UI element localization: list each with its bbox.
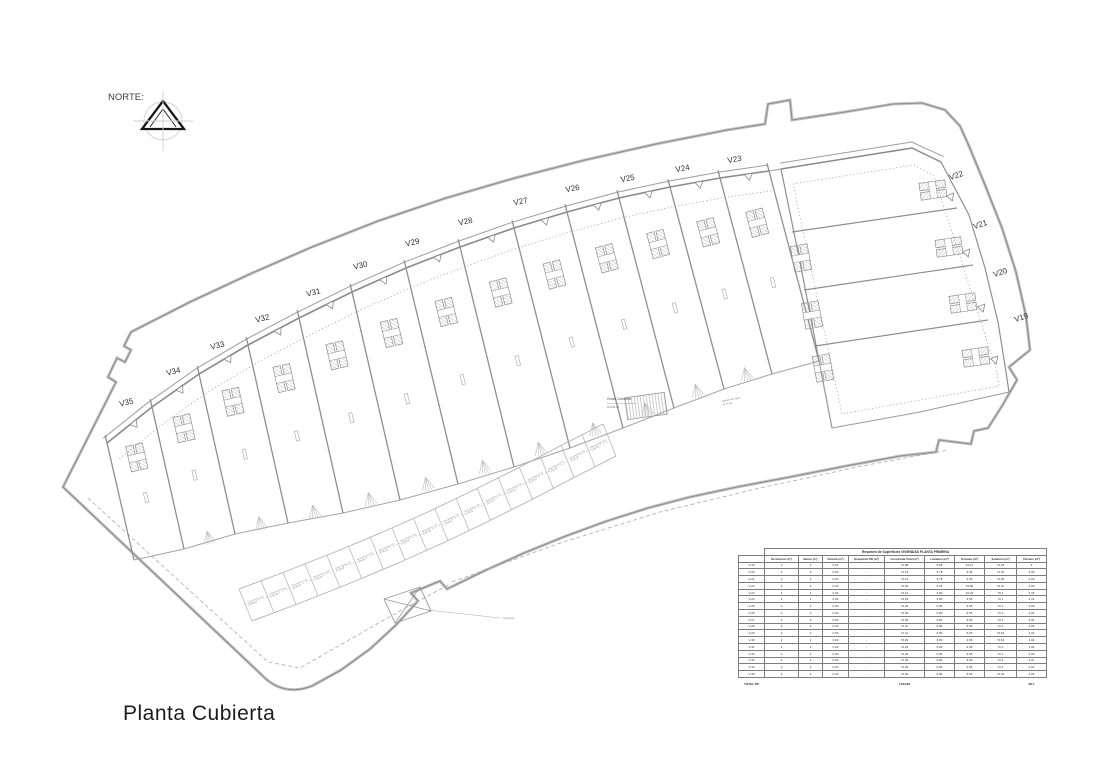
table-header: Trastero (m²) (1017, 555, 1047, 562)
parking-stall-label: Aparcamiento V2012,50 m2 (569, 449, 588, 462)
drawing-title: Planta Cubierta (123, 702, 275, 726)
roof-vent (349, 413, 354, 423)
table-row: V-26220,00-72,296,809,5672,14,04 (739, 610, 1047, 617)
table-cell: 72,1 (985, 650, 1017, 657)
row-id: V-23 (739, 589, 765, 596)
table-cell: 2 (799, 616, 823, 623)
row-id: V-21 (739, 576, 765, 583)
table-row: V-21220,00-71,135,789,3572,364,03 (739, 576, 1047, 583)
zonas-comunes-label: Zonas Comunes (607, 397, 632, 401)
stair-core-hatch (126, 443, 148, 472)
parking-stall-label: Aparcamiento V2812,50 m2 (400, 533, 419, 546)
parking-stall-label: Aparcamiento V2612,50 m2 (442, 513, 461, 526)
villa-label-V35: V35 (118, 396, 135, 408)
stair-core-hatch (543, 260, 566, 289)
table-cell: 2 (765, 569, 799, 576)
entrance-triangle (695, 181, 704, 189)
terrace-fan-line (692, 384, 695, 398)
table-cell: 72,1 (985, 623, 1017, 630)
row-id: V-26 (739, 610, 765, 617)
table-total-row: TOTAL PP1233,8068,7 (739, 679, 1047, 687)
table-row: V-28220,00-71,416,809,0572,14,04 (739, 623, 1047, 630)
table-cell: 2 (765, 664, 799, 671)
table-header: Dormitorios (nº) (765, 555, 799, 562)
table-header: Lavadero (m²) (925, 555, 955, 562)
setback-dashed-line (88, 498, 450, 668)
stair-core-hatch (949, 293, 977, 313)
table-row: V-35220,00-74,066,809,5674,334,04 (739, 671, 1047, 678)
table-cell: 5,78 (925, 576, 955, 583)
table-cell: 0,00 (823, 569, 849, 576)
table-cell: 72,1 (985, 616, 1017, 623)
table-cell: 6,80 (925, 596, 955, 603)
total-blank (823, 679, 849, 687)
table-cell: 4,01 (1017, 664, 1047, 671)
table-header: Ocupación PB (m²) (849, 555, 885, 562)
total-blank (985, 679, 1017, 687)
table-cell: 72,29 (885, 657, 925, 664)
terrace-fan-line (309, 505, 312, 519)
table-cell: 6,80 (925, 610, 955, 617)
table-cell: - (849, 657, 885, 664)
row-id: V-35 (739, 671, 765, 678)
table-cell: 0,00 (823, 664, 849, 671)
table-row: V-34220,00-72,296,809,5672,14,01 (739, 664, 1047, 671)
table-cell: 2 (765, 596, 799, 603)
table-cell: 74,64 (985, 637, 1017, 644)
total-blank (849, 679, 885, 687)
table-cell: 72,29 (885, 603, 925, 610)
table-cell: - (849, 589, 885, 596)
villa-label-V34: V34 (165, 365, 182, 377)
unit-divider (668, 179, 724, 389)
table-cell: 4,14 (1017, 596, 1047, 603)
table-cell: 10,11 (955, 562, 985, 569)
table-cell: 9,05 (955, 623, 985, 630)
table-cell: 0,00 (823, 589, 849, 596)
table-cell: 0,00 (823, 603, 849, 610)
villa-label-V23: V23 (727, 154, 743, 165)
stair-core-hatch (697, 218, 720, 247)
table-cell: 9,56 (955, 616, 985, 623)
parking-stall-label: Aparcamiento V2912,50 m2 (378, 542, 397, 554)
table-cell: 0,00 (823, 562, 849, 569)
parking-stall-label: Aparcamiento V2412,50 m2 (485, 492, 504, 505)
entrance-triangle (434, 254, 444, 263)
row-id: V-24 (739, 596, 765, 603)
table-cell: 10,22 (955, 589, 985, 596)
table-cell: 75,4 (985, 589, 1017, 596)
entrance-triangle (176, 386, 186, 396)
table-cell: 0,00 (823, 596, 849, 603)
table-cell: 72,98 (885, 562, 925, 569)
zonas-comunes-sublabel: Zonas peatonales y ajardinadas (607, 402, 636, 405)
row-id: V-34 (739, 664, 765, 671)
table-cell: - (849, 616, 885, 623)
table-cell: 2 (765, 562, 799, 569)
table-cell: 6,80 (925, 671, 955, 678)
table-cell: 71,36 (985, 569, 1017, 576)
stair-core-hatch (962, 347, 990, 367)
table-cell: 9,56 (955, 596, 985, 603)
table-cell: 4,03 (1017, 589, 1047, 596)
stair-core-hatch (790, 244, 811, 273)
stair-core-hatch (935, 237, 963, 257)
unit-divider (565, 204, 623, 428)
table-cell: 9,56 (955, 637, 985, 644)
roof-vent (192, 470, 197, 480)
table-cell: 72,36 (985, 576, 1017, 583)
table-cell: 2 (765, 610, 799, 617)
table-cell: 6,80 (925, 630, 955, 637)
table-cell: 2 (799, 569, 823, 576)
summary-table: Resumen de Superficies VIVIENDAS PLANTA … (738, 548, 1046, 687)
table-cell: 74,33 (985, 671, 1017, 678)
parking-stall-label: Aparcamiento V2712,50 m2 (421, 523, 440, 536)
table-cell: - (849, 623, 885, 630)
entrance-triangle (990, 355, 998, 364)
table-cell: 6,80 (925, 603, 955, 610)
table-cell: 4,04 (1017, 671, 1047, 678)
terrace-fan-line (256, 517, 259, 531)
parking-stall-label: Aparcamiento V3012,50 m2 (356, 551, 375, 563)
table-cell: 6,80 (925, 664, 955, 671)
row-id: V-32 (739, 650, 765, 657)
table-cell: - (849, 569, 885, 576)
entrance-triangle (326, 301, 336, 310)
stair-core-hatch (489, 278, 512, 307)
table-cell: 72,29 (885, 643, 925, 650)
table-cell: - (849, 664, 885, 671)
table-cell: - (849, 637, 885, 644)
total-blank (955, 679, 985, 687)
table-cell: 2 (799, 603, 823, 610)
table-cell: 4,04 (1017, 643, 1047, 650)
table-cell: 2 (799, 562, 823, 569)
parking-stall-label: Aparcamiento V2112,50 m2 (548, 460, 567, 474)
table-cell: 3,99 (1017, 603, 1047, 610)
table-cell: 2 (799, 576, 823, 583)
table-row: V-24220,00-72,296,809,5672,14,14 (739, 596, 1047, 603)
table-cell: 9,35 (955, 576, 985, 583)
entrance-triangle (224, 355, 234, 365)
stair-core-hatch (647, 229, 670, 258)
table-cell: 71,41 (885, 630, 925, 637)
terrace-fan-line (535, 442, 538, 456)
table-cell: 5,78 (925, 569, 955, 576)
table-cell: - (849, 643, 885, 650)
table-row: V-33220,00-72,296,809,5672,14,01 (739, 657, 1047, 664)
roof-vent (294, 431, 299, 441)
table-cell: 73,41 (985, 582, 1017, 589)
villa-label-V22: V22 (948, 169, 965, 182)
table-cell: 6,80 (925, 616, 955, 623)
table-cell: 72,93 (885, 582, 925, 589)
table-cell: 71,13 (885, 569, 925, 576)
table-cell: - (849, 562, 885, 569)
table-cell: 2 (799, 589, 823, 596)
block-bottom-edge (832, 392, 1009, 428)
villa-label-V24: V24 (675, 163, 691, 174)
table-cell: 0,00 (823, 643, 849, 650)
table-cell: 2 (799, 671, 823, 678)
table-cell: 2 (765, 576, 799, 583)
table-cell: 6,80 (925, 643, 955, 650)
table-cell: - (849, 576, 885, 583)
parking-stall-label: Aparcamiento V3112,50 m2 (335, 560, 354, 572)
table-row: V-30220,00-72,296,809,5674,644,04 (739, 637, 1047, 644)
entrance-triangle (130, 420, 140, 430)
row-id: V-33 (739, 657, 765, 664)
stair-core-hatch (801, 301, 822, 330)
parking-stall-label: Aparcamiento V3412,50 m2 (269, 586, 288, 598)
table-cell: 74,06 (885, 671, 925, 678)
table-cell: - (849, 671, 885, 678)
roof-vent (569, 337, 575, 347)
table-cell: 74,04 (985, 562, 1017, 569)
north-label: NORTE: (108, 92, 144, 103)
table-cell: 72,29 (885, 610, 925, 617)
unit-divider (297, 310, 343, 513)
table-cell: 2 (799, 637, 823, 644)
table-title: Resumen de Superficies VIVIENDAS PLANTA … (765, 549, 1047, 556)
table-cell: 2 (799, 657, 823, 664)
table-cell: 6,80 (925, 623, 955, 630)
unit-divider (718, 170, 772, 374)
table-cell: 5,08 (925, 562, 955, 569)
table-cell: 72,1 (985, 603, 1017, 610)
block-street-edge (780, 142, 944, 163)
table-cell: 2 (765, 630, 799, 637)
table-cell: 72,29 (885, 596, 925, 603)
unit-divider (815, 320, 988, 346)
villa-label-V25: V25 (620, 173, 636, 184)
roof-vent (672, 303, 678, 313)
table-cell: 2 (765, 623, 799, 630)
table-cell: 71,41 (885, 623, 925, 630)
entrance-triangle (977, 303, 985, 312)
table-cell: 0,00 (823, 616, 849, 623)
table-cell: - (849, 630, 885, 637)
row-id: V-29 (739, 630, 765, 637)
table-cell: 4,04 (1017, 610, 1047, 617)
table-cell: 4,04 (1017, 623, 1047, 630)
villa-label-V28: V28 (458, 216, 474, 228)
stair-core-hatch (326, 341, 348, 370)
table-cell: 71,13 (885, 576, 925, 583)
table-cell: 9,56 (955, 650, 985, 657)
entrance-triangle (274, 327, 284, 336)
table-cell: 10,50 (955, 582, 985, 589)
table-cell: 2 (765, 582, 799, 589)
table-row: V-32220,00-72,296,809,5672,14,06 (739, 650, 1047, 657)
terrace-fan-line (365, 492, 368, 506)
block-setback-dotted (793, 165, 999, 414)
unit-divider (804, 265, 973, 290)
table-cell: 9,56 (955, 603, 985, 610)
row-id: V-30 (739, 637, 765, 644)
table-cell: 9,35 (955, 569, 985, 576)
table-cell: 6,80 (925, 650, 955, 657)
parking-stall-label: Aparcamiento V3212,50 m2 (313, 569, 332, 581)
table-cell: 4,05 (1017, 582, 1047, 589)
terrace-fan-line (422, 477, 425, 491)
entrance-triangle (946, 192, 954, 201)
villa-label-V20: V20 (992, 266, 1009, 279)
table-cell: 4,09 (1017, 569, 1047, 576)
table-header: Parcela (m²) (823, 555, 849, 562)
row-id: V-31 (739, 643, 765, 650)
table-cell: 0,00 (823, 576, 849, 583)
table-cell: 9,56 (955, 671, 985, 678)
table-cell: - (849, 603, 885, 610)
table-cell: 2 (799, 643, 823, 650)
villa-label-V21: V21 (972, 218, 989, 231)
table-cell: 2 (765, 637, 799, 644)
table-corner-blank (739, 549, 765, 556)
villa-label-V27: V27 (513, 196, 529, 208)
parking-stall-label: Aparcamiento V1912,50 m2 (590, 438, 609, 451)
table-cell: 72,1 (985, 657, 1017, 664)
entrance-triangle (645, 191, 654, 199)
connector-line (769, 169, 781, 171)
table-cell: 72,29 (885, 616, 925, 623)
table-cell: 9,56 (955, 643, 985, 650)
table-cell: 9,56 (955, 610, 985, 617)
table-cell: 0,00 (823, 657, 849, 664)
row-id: V-27 (739, 616, 765, 623)
total-value: 68,7 (1017, 679, 1047, 687)
table-cell: 72,29 (885, 637, 925, 644)
table-cell: 2 (765, 616, 799, 623)
table-cell: 6,80 (925, 657, 955, 664)
row-id: V-28 (739, 623, 765, 630)
table-row: V-22220,00-72,935,0510,5073,414,05 (739, 582, 1047, 589)
table-cell: 4,03 (1017, 576, 1047, 583)
villa-label-V29: V29 (404, 236, 420, 248)
table-cell: 0,00 (823, 650, 849, 657)
stair-core-hatch (173, 414, 195, 443)
roof-vent (242, 449, 247, 459)
table-cell: 6,80 (925, 637, 955, 644)
table-row: V-31220,00-72,296,809,5672,14,04 (739, 643, 1047, 650)
parking-inner-edge (239, 424, 603, 589)
table-cell: 2 (765, 589, 799, 596)
table-cell: 72,1 (985, 664, 1017, 671)
table-cell: 2 (765, 657, 799, 664)
zonas-comunes-area: 1572,00 m2 (607, 407, 620, 409)
table-cell: 0,00 (823, 637, 849, 644)
table-header: Terrazas (m²) (955, 555, 985, 562)
table-cell: 0,00 (823, 582, 849, 589)
table-cell: 72,29 (885, 664, 925, 671)
villa-label-V30: V30 (352, 259, 368, 271)
table-cell: 2 (765, 650, 799, 657)
table-cell: 72,1 (985, 596, 1017, 603)
table-cell: 4 (1017, 562, 1047, 569)
entrance-triangle (380, 276, 390, 285)
unit-divider (512, 220, 570, 448)
unit-divider (617, 190, 674, 408)
table-cell: 4,04 (1017, 616, 1047, 623)
table-header-id (739, 555, 765, 562)
table-cell: - (849, 596, 885, 603)
row-id: V-22 (739, 582, 765, 589)
roof-vent (722, 289, 728, 299)
table-cell: 9,05 (955, 630, 985, 637)
villa-label-V26: V26 (565, 183, 581, 194)
table-cell: 2 (799, 623, 823, 630)
table-header: Baños (nº) (799, 555, 823, 562)
stair-core-hatch (222, 387, 244, 416)
table-row: V-25220,00-72,296,809,5672,13,99 (739, 603, 1047, 610)
lamina-agua-area: 87,50 m2 (723, 402, 733, 406)
total-blank (765, 679, 799, 687)
table-header: Solarium (m²) (985, 555, 1017, 562)
parking-stall-label: Aparcamiento V2512,50 m2 (464, 503, 483, 516)
parking-stall-label: Aparcamiento V2312,50 m2 (506, 482, 525, 495)
parking-stall-label: Aparcamiento V2212,50 m2 (527, 471, 546, 485)
table-row: V-20220,00-71,135,789,3571,364,09 (739, 569, 1047, 576)
villa-label-V33: V33 (209, 339, 226, 351)
table-row: V-23220,00-74,146,8010,2275,44,03 (739, 589, 1047, 596)
total-blank (799, 679, 823, 687)
roof-vent (515, 355, 521, 365)
table-cell: - (849, 650, 885, 657)
stair-core-hatch (812, 354, 833, 383)
block-top-edge (781, 148, 941, 169)
stair-core-hatch (595, 244, 618, 273)
table-cell: 2 (799, 582, 823, 589)
villa-label-V31: V31 (305, 286, 322, 298)
table-cell: 72,29 (885, 650, 925, 657)
unit-divider (792, 208, 957, 232)
table-cell: - (849, 610, 885, 617)
table-cell: 5,05 (925, 582, 955, 589)
table-cell: 2 (799, 650, 823, 657)
total-value: 1233,80 (885, 679, 925, 687)
table-cell: 74,64 (985, 630, 1017, 637)
stair-core-hatch (746, 208, 769, 237)
table-row: V-19220,00-72,985,0810,1174,044 (739, 562, 1047, 569)
villa-label-V32: V32 (254, 312, 271, 324)
roof-vent (404, 393, 409, 403)
table-cell: 4,01 (1017, 657, 1047, 664)
row-id: V-19 (739, 562, 765, 569)
unit-divider (404, 260, 458, 484)
parking-stall-label: Aparcamiento V3312,50 m2 (291, 578, 310, 590)
table-cell: 2 (765, 603, 799, 610)
table-cell: 2 (799, 610, 823, 617)
table-cell: 4,04 (1017, 637, 1047, 644)
roof-vent (770, 277, 776, 287)
superficies-table: Resumen de Superficies VIVIENDAS PLANTA … (738, 548, 1047, 687)
total-label: TOTAL PP (739, 679, 765, 687)
table-row: V-27220,00-72,296,809,5672,14,04 (739, 616, 1047, 623)
roof-vent (143, 492, 148, 502)
table-cell: 0,00 (823, 671, 849, 678)
table-row: V-29220,00-71,416,809,0574,644,04 (739, 630, 1047, 637)
unit-divider (458, 239, 514, 467)
entrance-triangle (962, 248, 970, 257)
table-cell: 72,1 (985, 610, 1017, 617)
table-cell: 2 (799, 630, 823, 637)
acometida-label: Acometida (503, 617, 515, 620)
stair-core-hatch (919, 180, 947, 200)
table-cell: 6,80 (925, 589, 955, 596)
table-cell: 2 (765, 643, 799, 650)
roof-vent (460, 374, 465, 384)
